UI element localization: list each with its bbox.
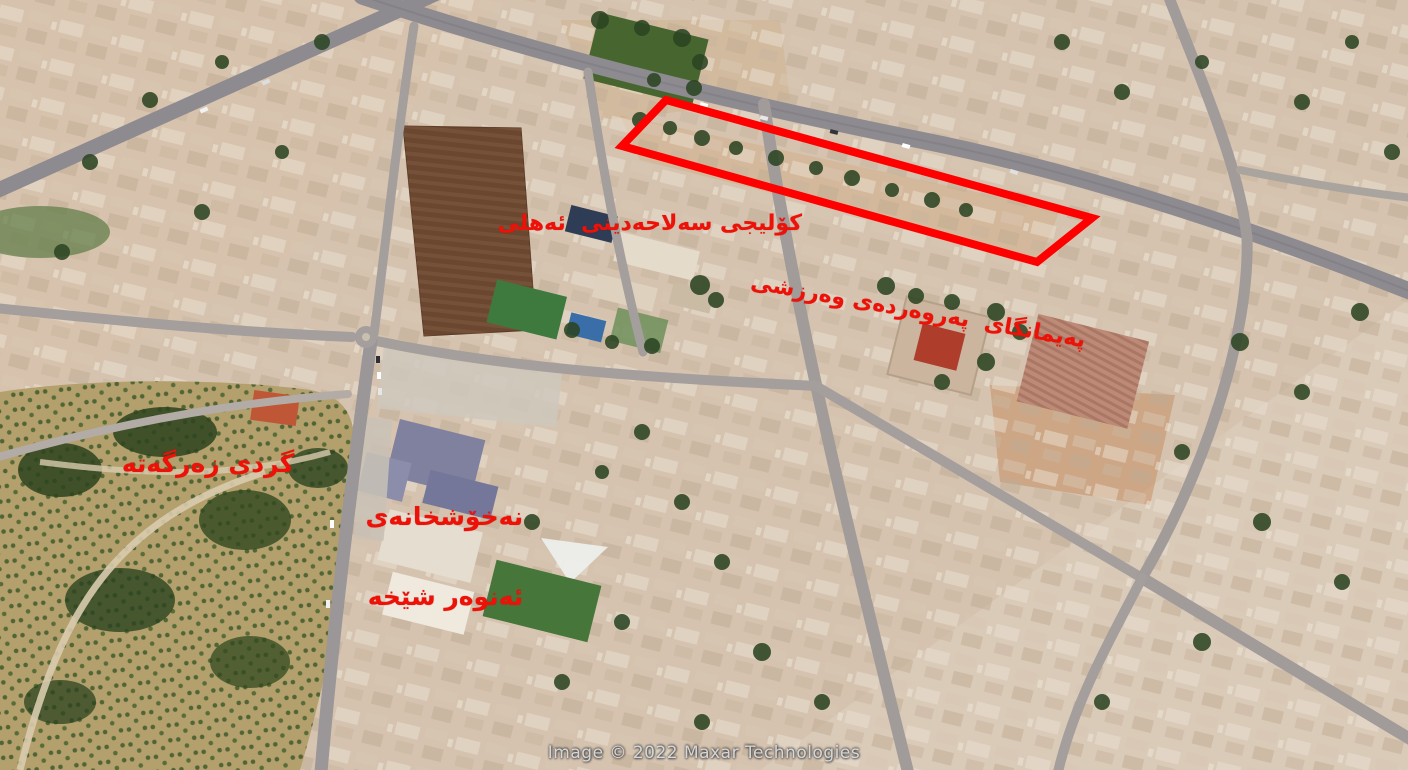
watermark-attribution: Image © 2022 Maxar Technologies <box>0 743 1408 763</box>
map-label-hospital: نەخۆشخانەی ئەنوەر شێخە <box>380 457 558 657</box>
google-earth-satellite-view[interactable]: کۆلیجی سەلاحەدینی ئەهلی پەیمانگای پەروەر… <box>0 0 1408 770</box>
map-label-zergete-hill: گردی زەرگەتە <box>116 449 300 479</box>
map-label-hospital-line2: ئەنوەر شێخە <box>368 582 523 611</box>
map-label-hospital-line1: نەخۆشخانەی <box>365 502 523 531</box>
map-label-college: کۆلیجی سەلاحەدینی ئەهلی <box>538 211 802 237</box>
satellite-imagery <box>0 0 1408 770</box>
